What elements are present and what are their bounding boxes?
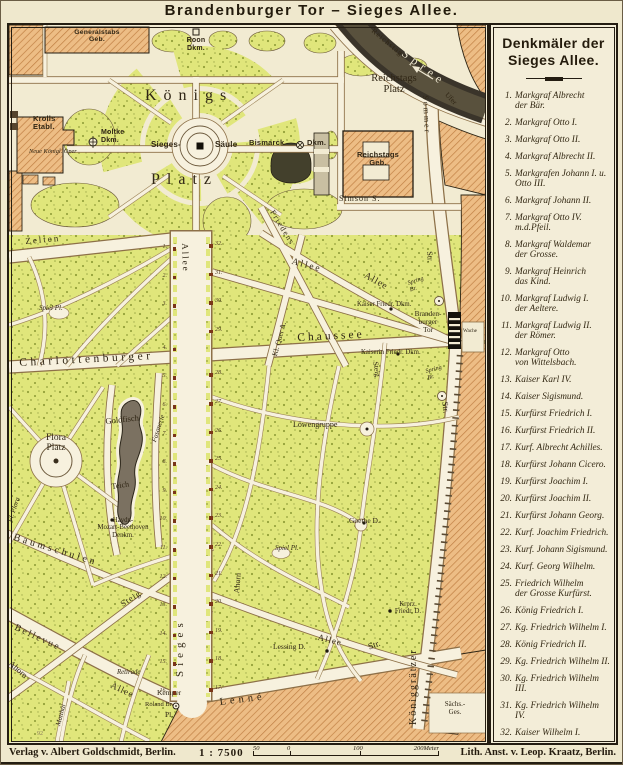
label-sommer-strasse-1: Sommer — [420, 95, 431, 135]
legend-entry-number: 19. — [498, 477, 512, 487]
label-moltke-denkmal: Moltke Dkm. — [101, 129, 124, 144]
legend-panel: Denkmäler der Sieges Allee. 1. Markgraf … — [489, 23, 618, 745]
brandenburger-tor-symbol — [448, 312, 461, 349]
legend-entry-number: 1. — [498, 91, 512, 111]
legend-entry-number: 5. — [498, 169, 512, 189]
legend-entry: 20. Kurfürst Joachim II. — [498, 494, 611, 504]
lessing-denkmal-icon — [325, 649, 328, 652]
legend-entry-text: Kurfürst Joachim II. — [515, 494, 591, 504]
legend-entry-number: 23. — [498, 545, 512, 555]
legend-entry-text: König Friedrich II. — [515, 640, 587, 650]
legend-entry: 9. Markgraf Heinrich das Kind. — [498, 267, 611, 287]
legend-entry: 4. Markgraf Albrecht II. — [498, 152, 611, 162]
scale-bar: 50 0 100 200Meter — [253, 746, 439, 761]
legend-entry: 5. Markgrafen Johann I. u. Otto III. — [498, 169, 611, 189]
legend-entry: 19. Kurfürst Joachim I. — [498, 477, 611, 487]
legend-entry: 7. Markgraf Otto IV. m.d.Pfeil. — [498, 213, 611, 233]
legend-entry: 26. König Friedrich I. — [498, 606, 611, 616]
legend-entry-number: 9. — [498, 267, 512, 287]
legend-entry-text: Kg. Friedrich Wilhelm IV. — [515, 701, 611, 721]
legend-entry: 22. Kurf. Joachim Friedrich. — [498, 528, 611, 538]
scale-label: 1 : 7500 — [199, 747, 244, 759]
label-kemper-platz-1: Kemper — [157, 689, 181, 697]
label-simson-strasse: Simson S. — [339, 195, 380, 204]
label-koeniggraetzer-strasse: Königgrätzer — [409, 648, 420, 725]
lithographer-imprint: Lith. Anst. v. Leop. Kraatz, Berlin. — [461, 747, 616, 758]
legend-entry: 27. Kg. Friedrich Wilhelm I. — [498, 623, 611, 633]
legend-entry-text: Kurfürst Friedrich I. — [515, 409, 592, 419]
legend-entry-number: 22. — [498, 528, 512, 538]
legend-entry: 23. Kurf. Johann Sigismund. — [498, 545, 611, 555]
label-bismarck-denkmal-2: Dkm. — [307, 139, 326, 147]
label-lessing-denkmal: Lessing D. — [273, 643, 306, 651]
legend-entry-text: Kg. Friedrich Wilhelm II. — [515, 657, 610, 667]
label-wache: Wache — [463, 329, 477, 335]
legend-entry-text: Markgraf Ludwig I. der Aeltere. — [515, 294, 589, 314]
label-roland-brunnen: Roland Br. — [145, 701, 173, 708]
legend-entry-text: Kaiser Sigismund. — [515, 392, 583, 402]
legend-entry-number: 11. — [498, 321, 512, 341]
legend-entry: 14. Kaiser Sigismund. — [498, 392, 611, 402]
legend-entry-text: Markgraf Otto II. — [515, 135, 580, 145]
legend-entries: 1. Markgraf Albrecht der Bär. 2. Markgra… — [491, 91, 616, 738]
kemper-platz-circle — [177, 688, 207, 718]
legend-title: Denkmäler der Sieges Allee. — [495, 35, 612, 69]
label-sommer-strasse-2: Str. — [424, 251, 434, 263]
legend-entry-number: 14. — [498, 392, 512, 402]
label-kaiserin-friedrich-denkmal: Kaiserin Friedr. Dkm. — [361, 349, 421, 356]
label-siegessaeule-2: Säule — [215, 141, 237, 150]
label-spielplatz-sued: Spiel Pl. — [275, 545, 299, 553]
label-goethe-denkmal: Goethe D. — [349, 517, 380, 525]
legend-entry-number: 27. — [498, 623, 512, 633]
label-krolls-etablissement: Krolls Etabl. — [33, 115, 55, 131]
legend-entry-number: 16. — [498, 426, 512, 436]
legend-entry-number: 4. — [498, 152, 512, 162]
legend-entry: 21. Kurfürst Johann Georg. — [498, 511, 611, 521]
label-kemper-platz-2: Pl. — [165, 711, 173, 719]
legend-entry-text: Markgraf Otto IV. m.d.Pfeil. — [515, 213, 582, 233]
legend-entry-number: 7. — [498, 213, 512, 233]
legend-entry: 8. Markgraf Waldemar der Grosse. — [498, 240, 611, 260]
publisher-imprint: Verlag v. Albert Goldschmidt, Berlin. — [9, 747, 176, 758]
legend-entry-number: 12. — [498, 348, 512, 368]
legend-entry: 16. Kurfürst Friedrich II. — [498, 426, 611, 436]
legend-entry-text: Markgraf Albrecht der Bär. — [515, 91, 584, 111]
legend-entry-text: Markgraf Heinrich das Kind. — [515, 267, 586, 287]
loewengruppe-icon — [366, 428, 369, 431]
map-panel: Generalstabs Geb. Roon Dkm. Königs Platz… — [7, 23, 489, 745]
legend-entry-text: Kurfürst Johann Cicero. — [515, 460, 606, 470]
map-graphic — [9, 25, 486, 742]
legend-entry: 3. Markgraf Otto II. — [498, 135, 611, 145]
label-plate-number: 92 — [37, 731, 43, 737]
legend-entry-number: 25. — [498, 579, 512, 599]
label-ahorn-steig-mitte: Ahorn — [233, 573, 243, 594]
label-neue-oper: Neue Königl. Oper — [29, 149, 77, 156]
legend-entry-text: Markgrafen Johann I. u. Otto III. — [515, 169, 606, 189]
legend-entry: 17. Kurf. Albrecht Achilles. — [498, 443, 611, 453]
legend-entry-number: 15. — [498, 409, 512, 419]
legend-entry: 31. Kg. Friedrich Wilhelm IV. — [498, 701, 611, 721]
label-brandenburger-tor: Branden- burger Tor — [407, 311, 449, 334]
legend-entry: 2. Markgraf Otto I. — [498, 118, 611, 128]
label-generalstabs-gebaeude: Generalstabs Geb. — [47, 29, 147, 44]
legend-entry-text: Markgraf Ludwig II. der Römer. — [515, 321, 592, 341]
legend-entry: 15. Kurfürst Friedrich I. — [498, 409, 611, 419]
legend-entry: 24. Kurf. Georg Wilhelm. — [498, 562, 611, 572]
legend-entry: 32. Kaiser Wilhelm I. — [498, 728, 611, 738]
legend-entry-text: Kurf. Joachim Friedrich. — [515, 528, 608, 538]
legend-entry-number: 24. — [498, 562, 512, 572]
label-saechsische-gesandtschaft: Sächs.- Ges. — [433, 701, 477, 716]
legend-entry: 6. Markgraf Johann II. — [498, 196, 611, 206]
legend-entry-number: 18. — [498, 460, 512, 470]
label-loewengruppe: Löwengruppe — [293, 421, 337, 430]
legend-entry-text: Kaiser Wilhelm I. — [515, 728, 580, 738]
legend-entry-number: 13. — [498, 375, 512, 385]
legend-entry-text: Kurf. Albrecht Achilles. — [515, 443, 603, 453]
scale-tick-100: 100 — [353, 745, 363, 752]
legend-entry-text: Markgraf Waldemar der Grosse. — [515, 240, 591, 260]
wache-area — [462, 322, 484, 352]
legend-entry: 12. Markgraf Otto von Wittelsbach. — [498, 348, 611, 368]
legend-entry: 18. Kurfürst Johann Cicero. — [498, 460, 611, 470]
label-haydn-mozart-beethoven-denkmal: Haydn- Mozart-Beethoven Denkm. — [71, 517, 175, 539]
legend-entry: 25. Friedrich Wilhelm der Grosse Kurfürs… — [498, 579, 611, 599]
bottom-rule — [1, 762, 622, 764]
label-retirade: Retirade — [117, 669, 140, 676]
label-roon-denkmal: Roon Dkm. — [179, 37, 213, 52]
legend-entry-text: Kurf. Johann Sigismund. — [515, 545, 607, 555]
legend-entry-text: Markgraf Johann II. — [515, 196, 591, 206]
label-spielplatz-nw: Spiel Pl. — [39, 305, 63, 313]
legend-entry-text: Kurfürst Friedrich II. — [515, 426, 595, 436]
legend-entry-text: Kg. Friedrich Wilhelm III. — [515, 674, 611, 694]
label-koenigsplatz-2: Platz — [151, 171, 218, 188]
legend-entry-text: Kg. Friedrich Wilhelm I. — [515, 623, 607, 633]
legend-entry-number: 3. — [498, 135, 512, 145]
label-kronprinz-friedrich-denkmal: Krprz. Friedr. D. — [379, 601, 437, 616]
legend-entry: 1. Markgraf Albrecht der Bär. — [498, 91, 611, 111]
legend-entry-number: 21. — [498, 511, 512, 521]
label-steig-tor: Steig — [371, 361, 382, 378]
legend-entry-number: 32. — [498, 728, 512, 738]
legend-entry: 10. Markgraf Ludwig I. der Aeltere. — [498, 294, 611, 314]
legend-entry-number: 17. — [498, 443, 512, 453]
legend-entry-number: 30. — [498, 674, 512, 694]
legend-entry-number: 29. — [498, 657, 512, 667]
label-reichstag-gebaeude: Reichstags Geb. — [343, 151, 413, 167]
legend-entry-number: 28. — [498, 640, 512, 650]
legend-entry-text: König Friedrich I. — [515, 606, 583, 616]
legend-entry-text: Markgraf Albrecht II. — [515, 152, 595, 162]
page-title: Brandenburger Tor – Sieges Allee. — [1, 2, 622, 19]
legend-entry-number: 26. — [498, 606, 512, 616]
legend-entry-number: 10. — [498, 294, 512, 314]
legend-entry-number: 31. — [498, 701, 512, 721]
legend-entry: 28. König Friedrich II. — [498, 640, 611, 650]
legend-entry-number: 2. — [498, 118, 512, 128]
label-bismarck-denkmal-1: Bismarck — [249, 139, 284, 147]
legend-entry-number: 8. — [498, 240, 512, 260]
legend-entry: 30. Kg. Friedrich Wilhelm III. — [498, 674, 611, 694]
legend-entry-text: Kaiser Karl IV. — [515, 375, 571, 385]
label-kaiser-friedrich-denkmal: Kaiser Friedr. Dkm. — [357, 301, 411, 308]
label-siegessaeule-1: Sieges- — [151, 141, 181, 150]
legend-entry-text: Markgraf Otto I. — [515, 118, 577, 128]
legend-entry: 11. Markgraf Ludwig II. der Römer. — [498, 321, 611, 341]
legend-entry-text: Kurfürst Joachim I. — [515, 477, 588, 487]
label-koeniggraetzer-str-oben: Str. — [440, 401, 451, 414]
legend-entry: 29. Kg. Friedrich Wilhelm II. — [498, 657, 611, 667]
label-flora-platz: Flora Platz — [27, 433, 85, 454]
legend-entry-number: 6. — [498, 196, 512, 206]
label-sieges-allee: Sieges — [175, 618, 187, 677]
legend-entry-text: Kurfürst Johann Georg. — [515, 511, 604, 521]
legend-entry: 13. Kaiser Karl IV. — [498, 375, 611, 385]
label-koenigsplatz-1: Königs — [145, 87, 233, 104]
scale-tick-200: 200Meter — [414, 745, 439, 752]
label-sieges-allee-upper: Allee — [179, 243, 190, 273]
legend-entry-text: Friedrich Wilhelm der Grosse Kurfürst. — [515, 579, 592, 599]
legend-entry-text: Kurf. Georg Wilhelm. — [515, 562, 595, 572]
legend-entry-text: Markgraf Otto von Wittelsbach. — [515, 348, 576, 368]
legend-divider-ornament — [526, 76, 582, 82]
legend-entry-number: 20. — [498, 494, 512, 504]
map-sheet: Brandenburger Tor – Sieges Allee. — [0, 0, 623, 765]
